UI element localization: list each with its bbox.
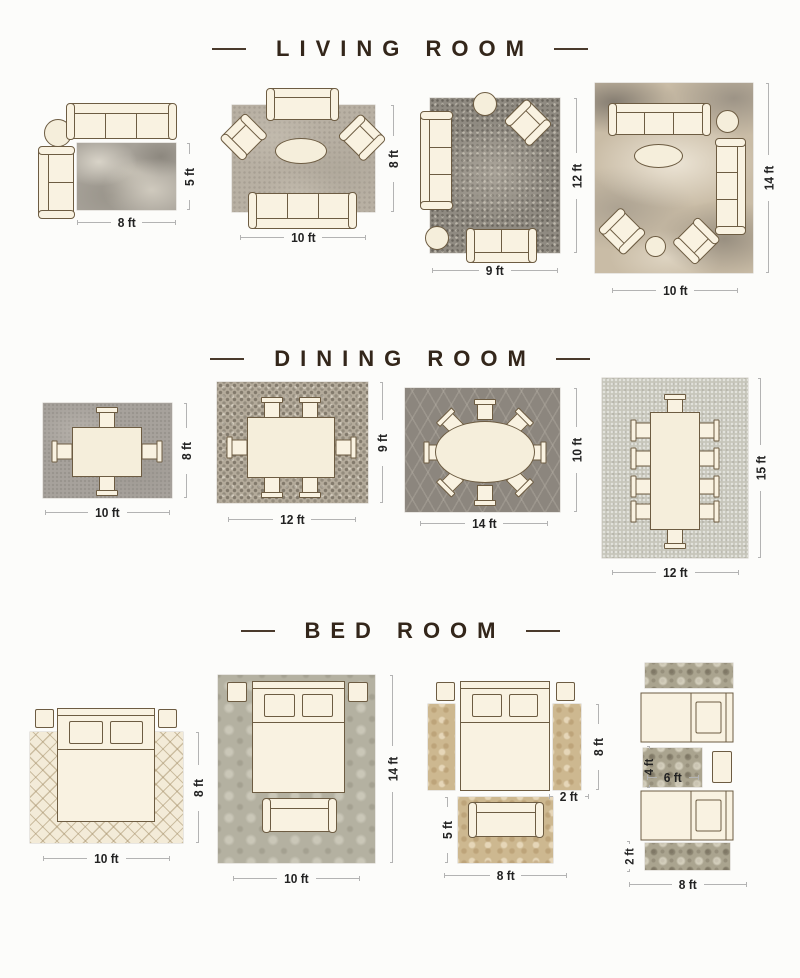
dim-height-b2: 14 ft: [384, 675, 400, 863]
twin-bed: [641, 791, 734, 841]
sofa: [66, 103, 176, 139]
dim-width-b2: 10 ft: [233, 871, 360, 886]
living-rug-8x5: [77, 143, 176, 210]
dim-height-d2: 9 ft: [374, 382, 390, 503]
loveseat: [467, 229, 537, 263]
section-title-dining-text: DINING ROOM: [264, 346, 536, 372]
dining-chair: [474, 399, 496, 420]
dim-height-l1: 5 ft: [181, 143, 197, 210]
dining-chair: [699, 448, 720, 470]
dining-table: [650, 412, 700, 530]
sofa: [716, 138, 746, 234]
dining-chair: [261, 397, 283, 418]
dim-height-d4: 15 ft: [752, 378, 768, 558]
dim-runner-height-b3: 8 ft: [590, 704, 606, 790]
section-title-living: LIVING ROOM: [0, 36, 800, 62]
section-title-bed: BED ROOM: [0, 618, 800, 644]
dining-chair: [336, 437, 357, 459]
dim-rug-width-b4: 8 ft: [629, 877, 747, 892]
title-dash-left: [210, 358, 244, 360]
bed: [57, 708, 155, 822]
nightstand: [712, 751, 732, 783]
dining-chair: [631, 420, 652, 442]
dining-chair: [96, 407, 118, 428]
dining-chair: [631, 501, 652, 523]
rug-size-guide: LIVING ROOM 8 ft 5 ft 10 ft 8 ft: [0, 0, 800, 978]
dining-table: [247, 417, 335, 478]
sofa: [608, 103, 710, 135]
bed: [252, 681, 345, 793]
dining-chair: [142, 441, 163, 463]
dim-width-d2: 12 ft: [228, 512, 356, 527]
side-table: [645, 236, 666, 257]
dining-chair: [631, 448, 652, 470]
bed-runner-top: [645, 663, 733, 688]
dining-chair: [96, 475, 118, 496]
dim-height-b1: 8 ft: [190, 732, 206, 843]
dining-chair: [699, 476, 720, 498]
dim-width-l3: 9 ft: [432, 263, 558, 278]
side-table: [425, 226, 449, 250]
dining-chair: [261, 477, 283, 498]
side-table: [473, 92, 497, 116]
dining-chair: [699, 420, 720, 442]
title-dash-right: [526, 630, 560, 632]
dining-chair: [664, 528, 686, 549]
dining-chair: [474, 485, 496, 506]
dim-height-l2: 8 ft: [385, 105, 401, 212]
sofa: [420, 112, 452, 210]
chaise: [38, 147, 74, 219]
bed-runner-left: [428, 704, 455, 790]
dining-table: [72, 427, 142, 477]
dim-width-d3: 14 ft: [420, 516, 548, 531]
nightstand: [35, 709, 54, 728]
title-dash-left: [241, 630, 275, 632]
dim-height-d3: 10 ft: [568, 388, 584, 512]
dining-chair: [299, 477, 321, 498]
dim-rug-height-b3: 5 ft: [439, 797, 455, 863]
dim-width-l4: 10 ft: [612, 283, 738, 298]
bed-runner-bottom: [645, 843, 730, 870]
bed-runner-right: [553, 704, 581, 790]
bench: [262, 798, 336, 832]
nightstand: [348, 682, 368, 702]
section-title-bed-text: BED ROOM: [295, 618, 506, 644]
nightstand: [158, 709, 177, 728]
dim-rug-width-b3: 8 ft: [444, 868, 567, 883]
nightstand: [556, 682, 575, 701]
dim-height-l4: 14 ft: [760, 83, 776, 273]
nightstand: [227, 682, 247, 702]
sofa: [249, 193, 357, 229]
sofa: [266, 88, 338, 120]
dining-chair: [52, 441, 73, 463]
side-table: [716, 110, 739, 133]
dim-height-l3: 12 ft: [568, 98, 584, 253]
coffee-table: [275, 138, 327, 164]
dim-mid-rug-width-b4: 6 ft: [647, 770, 699, 785]
section-title-living-text: LIVING ROOM: [266, 36, 534, 62]
dim-width-d4: 12 ft: [612, 565, 739, 580]
dining-chair: [299, 397, 321, 418]
twin-bed: [641, 693, 734, 743]
bed: [460, 681, 550, 791]
dim-width-l2: 10 ft: [240, 230, 366, 245]
bench: [468, 802, 543, 837]
dim-height-d1: 8 ft: [178, 403, 194, 498]
title-dash-left: [212, 48, 246, 50]
dim-width-d1: 10 ft: [45, 505, 170, 520]
section-title-dining: DINING ROOM: [0, 346, 800, 372]
nightstand: [436, 682, 455, 701]
dining-table-oval: [435, 421, 535, 483]
dining-chair: [699, 501, 720, 523]
dining-chair: [227, 437, 248, 459]
dining-chair: [631, 476, 652, 498]
coffee-table: [634, 144, 683, 168]
title-dash-right: [556, 358, 590, 360]
dim-runner-height-b4: 2 ft: [621, 841, 637, 872]
dim-runner-width-b3: 2 ft: [549, 789, 589, 804]
dim-width-l1: 8 ft: [77, 215, 176, 230]
dim-width-b1: 10 ft: [43, 851, 170, 866]
title-dash-right: [554, 48, 588, 50]
